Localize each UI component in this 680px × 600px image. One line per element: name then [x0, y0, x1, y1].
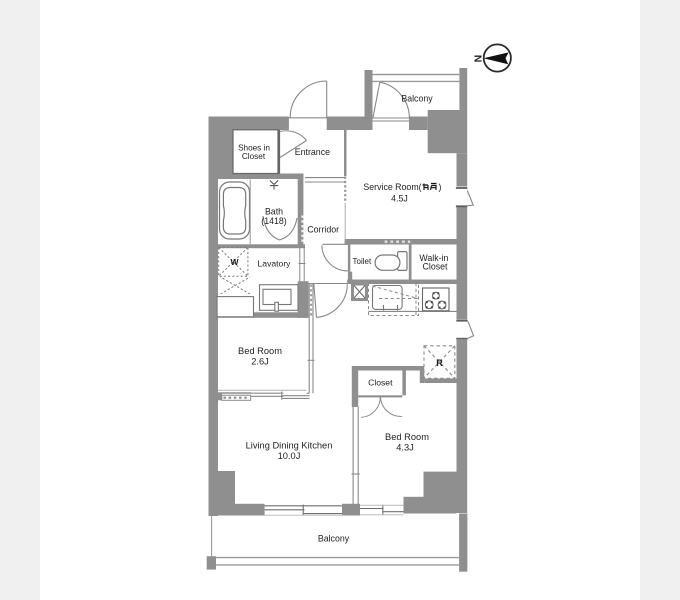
svg-text:Closet: Closet [242, 152, 266, 161]
svg-text:): ) [439, 182, 442, 192]
svg-text:N: N [473, 55, 485, 63]
svg-text:Closet: Closet [368, 377, 393, 387]
svg-text:Service Room(: Service Room( [363, 182, 421, 192]
svg-text:Toilet: Toilet [353, 257, 372, 266]
svg-text:Corridor: Corridor [307, 225, 339, 235]
svg-text:R: R [436, 358, 443, 368]
svg-text:2.6J: 2.6J [251, 357, 269, 367]
svg-text:Entrance: Entrance [295, 147, 330, 157]
svg-text:Lavatory: Lavatory [258, 259, 292, 269]
svg-text:Bed Room: Bed Room [238, 346, 282, 356]
svg-text:(1418): (1418) [261, 216, 286, 226]
svg-text:W: W [230, 257, 239, 267]
svg-text:Bed Room: Bed Room [385, 432, 429, 442]
svg-text:Bath: Bath [265, 207, 283, 217]
svg-text:Closet: Closet [423, 261, 448, 271]
svg-text:Balcony: Balcony [401, 93, 433, 103]
svg-text:Living Dining Kitchen: Living Dining Kitchen [246, 440, 333, 450]
svg-text:4.3J: 4.3J [396, 443, 414, 453]
svg-text:4.5J: 4.5J [391, 194, 408, 204]
svg-text:10.0J: 10.0J [278, 451, 301, 461]
svg-text:Balcony: Balcony [318, 534, 350, 544]
